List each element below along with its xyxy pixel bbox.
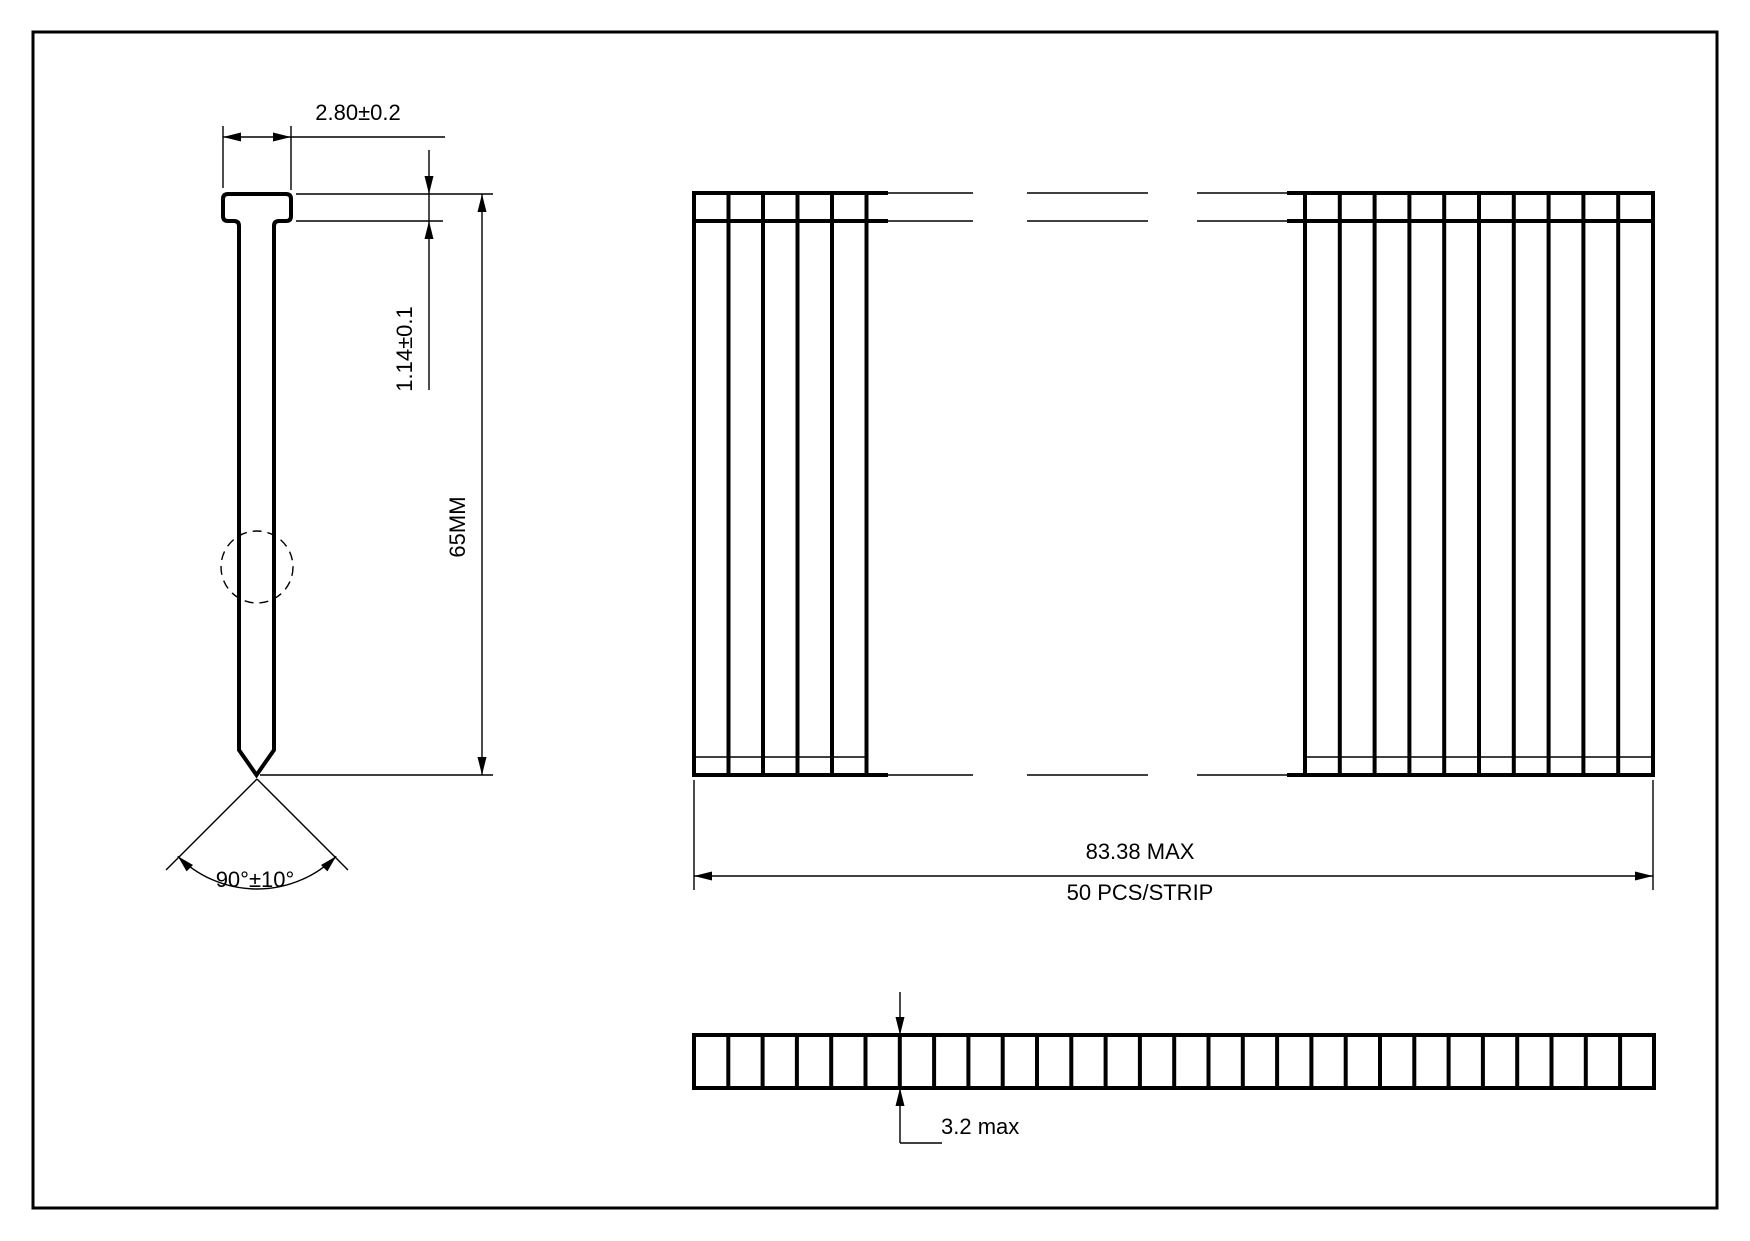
strip-side-dividers xyxy=(728,1035,1620,1088)
arrowhead-arc-right xyxy=(321,856,336,871)
arrowhead-down xyxy=(425,176,434,194)
strip-side-view: 3.2 max xyxy=(694,992,1654,1143)
arrowhead-down xyxy=(478,757,487,775)
dim-head-thickness-label: 1.14±0.1 xyxy=(392,306,417,391)
drawing-sheet: 2.80±0.2 1.14±0.1 65MM 90°±10° xyxy=(0,0,1750,1241)
drawing-canvas: 2.80±0.2 1.14±0.1 65MM 90°±10° xyxy=(0,0,1750,1241)
nail-outline xyxy=(223,194,291,775)
dim-strip-thickness-label: 3.2 max xyxy=(941,1114,1019,1139)
angle-line xyxy=(257,779,348,870)
strip-front-view: 83.38 MAX 50 PCS/STRIP xyxy=(692,193,1655,905)
arrowhead-right xyxy=(273,133,291,142)
dim-head-width-label: 2.80±0.2 xyxy=(315,100,400,125)
angle-line xyxy=(166,779,257,870)
arrowhead-left xyxy=(223,133,241,142)
sheet-border xyxy=(33,32,1717,1208)
arrowhead-down xyxy=(896,1017,905,1035)
arrowhead-up xyxy=(425,221,434,239)
detail-callout-circle xyxy=(221,531,293,603)
strip-piece-count-label: 50 PCS/STRIP xyxy=(1067,880,1214,905)
nail-profile-view: 2.80±0.2 1.14±0.1 65MM 90°±10° xyxy=(166,100,493,892)
arrowhead-right xyxy=(1635,872,1653,881)
strip-front-right-group xyxy=(1305,193,1653,775)
dim-length-label: 65MM xyxy=(445,496,470,557)
arrowhead-up xyxy=(896,1088,905,1106)
dim-strip-width-label: 83.38 MAX xyxy=(1086,839,1195,864)
arrowhead-arc-left xyxy=(178,856,193,871)
arrowhead-left xyxy=(694,872,712,881)
strip-front-left-group xyxy=(694,193,867,775)
arrowhead-up xyxy=(478,194,487,212)
dim-point-angle-label: 90°±10° xyxy=(216,867,295,892)
